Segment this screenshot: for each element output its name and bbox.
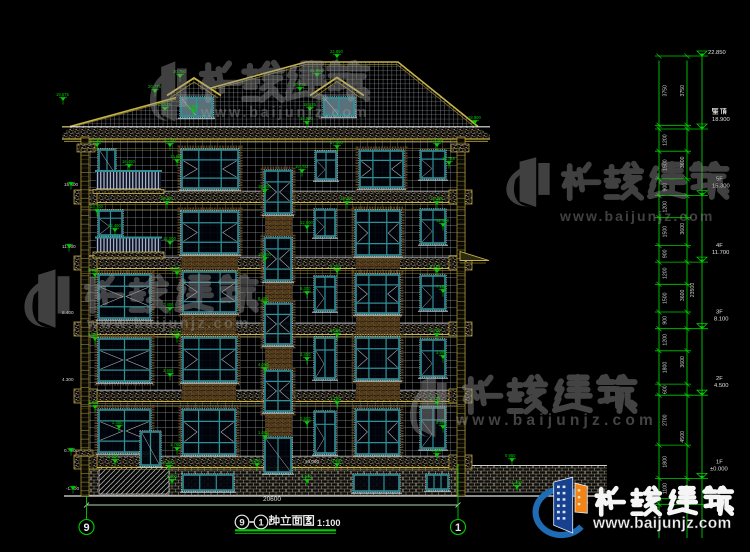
svg-text:1.060: 1.060 <box>258 430 269 435</box>
svg-text:14.488: 14.488 <box>430 196 443 201</box>
svg-text:1.180: 1.180 <box>330 396 341 401</box>
svg-text:8.300: 8.300 <box>300 286 311 291</box>
svg-text:7.188: 7.188 <box>436 284 447 289</box>
svg-text:17.700: 17.700 <box>163 138 176 143</box>
svg-text:4F: 4F <box>716 243 723 249</box>
svg-text:17.000: 17.000 <box>330 140 343 145</box>
svg-text:15.000: 15.000 <box>258 184 271 189</box>
svg-text:1: 1 <box>455 522 461 534</box>
svg-text:18.525: 18.525 <box>186 104 199 109</box>
svg-text:2.400: 2.400 <box>88 400 99 405</box>
svg-text:-1.400: -1.400 <box>510 480 523 485</box>
svg-text:14.400: 14.400 <box>340 196 353 201</box>
svg-text:0.300: 0.300 <box>250 458 261 463</box>
svg-text:1200: 1200 <box>663 267 669 279</box>
svg-text:16.788: 16.788 <box>442 156 455 161</box>
svg-text:9.300: 9.300 <box>330 264 341 269</box>
svg-text:-1.500: -1.500 <box>300 474 313 479</box>
svg-text:1F: 1F <box>716 459 723 465</box>
svg-text:12.460: 12.460 <box>108 223 121 228</box>
svg-text:18.900: 18.900 <box>712 117 730 123</box>
svg-text:12.188: 12.188 <box>436 218 449 223</box>
svg-text:3600: 3600 <box>680 356 686 368</box>
svg-text:1200: 1200 <box>663 334 669 346</box>
svg-text:2F: 2F <box>716 376 723 382</box>
svg-text:16.400: 16.400 <box>160 196 173 201</box>
svg-text:19.575: 19.575 <box>56 92 69 97</box>
svg-text:900: 900 <box>663 316 669 325</box>
svg-text:9.188: 9.188 <box>430 264 441 269</box>
svg-text:18.900: 18.900 <box>468 115 481 120</box>
svg-text:0.200: 0.200 <box>108 454 119 459</box>
svg-text:9: 9 <box>83 522 89 534</box>
svg-text:1:100: 1:100 <box>317 518 341 528</box>
svg-text:5.080: 5.080 <box>330 328 341 333</box>
svg-text:9.300: 9.300 <box>170 266 181 271</box>
svg-text:www.baijunjz.com: www.baijunjz.com <box>455 412 657 429</box>
svg-text:-1.500: -1.500 <box>165 474 178 479</box>
svg-text:1: 1 <box>258 518 264 529</box>
svg-text:10.800: 10.800 <box>258 252 271 257</box>
svg-text:1500: 1500 <box>663 226 669 238</box>
svg-text:±0.000: ±0.000 <box>710 466 728 472</box>
svg-text:23500: 23500 <box>690 283 696 298</box>
svg-text:15.600: 15.600 <box>170 154 183 159</box>
svg-text:13.700: 13.700 <box>90 204 103 209</box>
svg-text:4.500: 4.500 <box>714 383 729 389</box>
svg-text:17.300: 17.300 <box>90 138 103 143</box>
svg-text:0.900: 0.900 <box>300 416 311 421</box>
svg-text:±0.000: ±0.000 <box>305 459 319 464</box>
svg-text:900: 900 <box>663 249 669 258</box>
svg-text:4.060: 4.060 <box>258 362 269 367</box>
svg-text:www.baijunjz.com: www.baijunjz.com <box>592 515 732 532</box>
svg-text:3.450: 3.450 <box>300 352 311 357</box>
svg-text:3600: 3600 <box>680 290 686 302</box>
svg-text:3600: 3600 <box>680 223 686 235</box>
svg-text:1100: 1100 <box>663 483 669 494</box>
svg-text:5.900: 5.900 <box>88 332 99 337</box>
svg-text:600: 600 <box>663 385 669 394</box>
svg-text:9: 9 <box>239 518 244 529</box>
svg-text:5.700: 5.700 <box>430 328 441 333</box>
svg-text:4500: 4500 <box>680 431 686 443</box>
svg-text:2.400: 2.400 <box>112 420 123 425</box>
svg-text:3750: 3750 <box>680 85 686 97</box>
svg-text:2700: 2700 <box>663 414 669 426</box>
svg-text:-0.450: -0.450 <box>330 458 343 463</box>
svg-text:3.900: 3.900 <box>163 368 174 373</box>
svg-text:3.900: 3.900 <box>436 350 447 355</box>
svg-text:12.000: 12.000 <box>163 236 176 241</box>
svg-text:22.850: 22.850 <box>330 49 343 54</box>
svg-text:1800: 1800 <box>663 362 669 374</box>
svg-text:11.700: 11.700 <box>712 250 729 256</box>
svg-text:9.900: 9.900 <box>88 268 99 273</box>
svg-text:1.780: 1.780 <box>170 442 181 447</box>
svg-text:16.700: 16.700 <box>295 164 308 169</box>
svg-text:1200: 1200 <box>663 134 669 146</box>
svg-text:-0.450: -0.450 <box>430 448 443 453</box>
svg-text:20600: 20600 <box>263 496 281 503</box>
svg-text:www.baijunjz.com: www.baijunjz.com <box>200 105 369 121</box>
svg-text:1800: 1800 <box>663 456 669 468</box>
svg-text:22.850: 22.850 <box>708 50 726 56</box>
svg-text:-0.450: -0.450 <box>162 460 175 465</box>
svg-text:www.baijunjz.com: www.baijunjz.com <box>559 208 714 224</box>
svg-text:3F: 3F <box>716 310 723 316</box>
svg-text:8.100: 8.100 <box>714 317 729 323</box>
svg-text:4.300: 4.300 <box>62 377 74 382</box>
svg-text:12.900: 12.900 <box>300 220 313 225</box>
svg-text:1500: 1500 <box>663 292 669 304</box>
svg-text:3750: 3750 <box>663 85 669 97</box>
svg-text:0.950: 0.950 <box>505 453 516 458</box>
svg-text:www.baijunjz.com: www.baijunjz.com <box>86 316 251 332</box>
svg-text:8.400: 8.400 <box>258 296 269 301</box>
svg-text:17.788: 17.788 <box>430 138 443 143</box>
svg-text:16.450: 16.450 <box>122 159 135 164</box>
